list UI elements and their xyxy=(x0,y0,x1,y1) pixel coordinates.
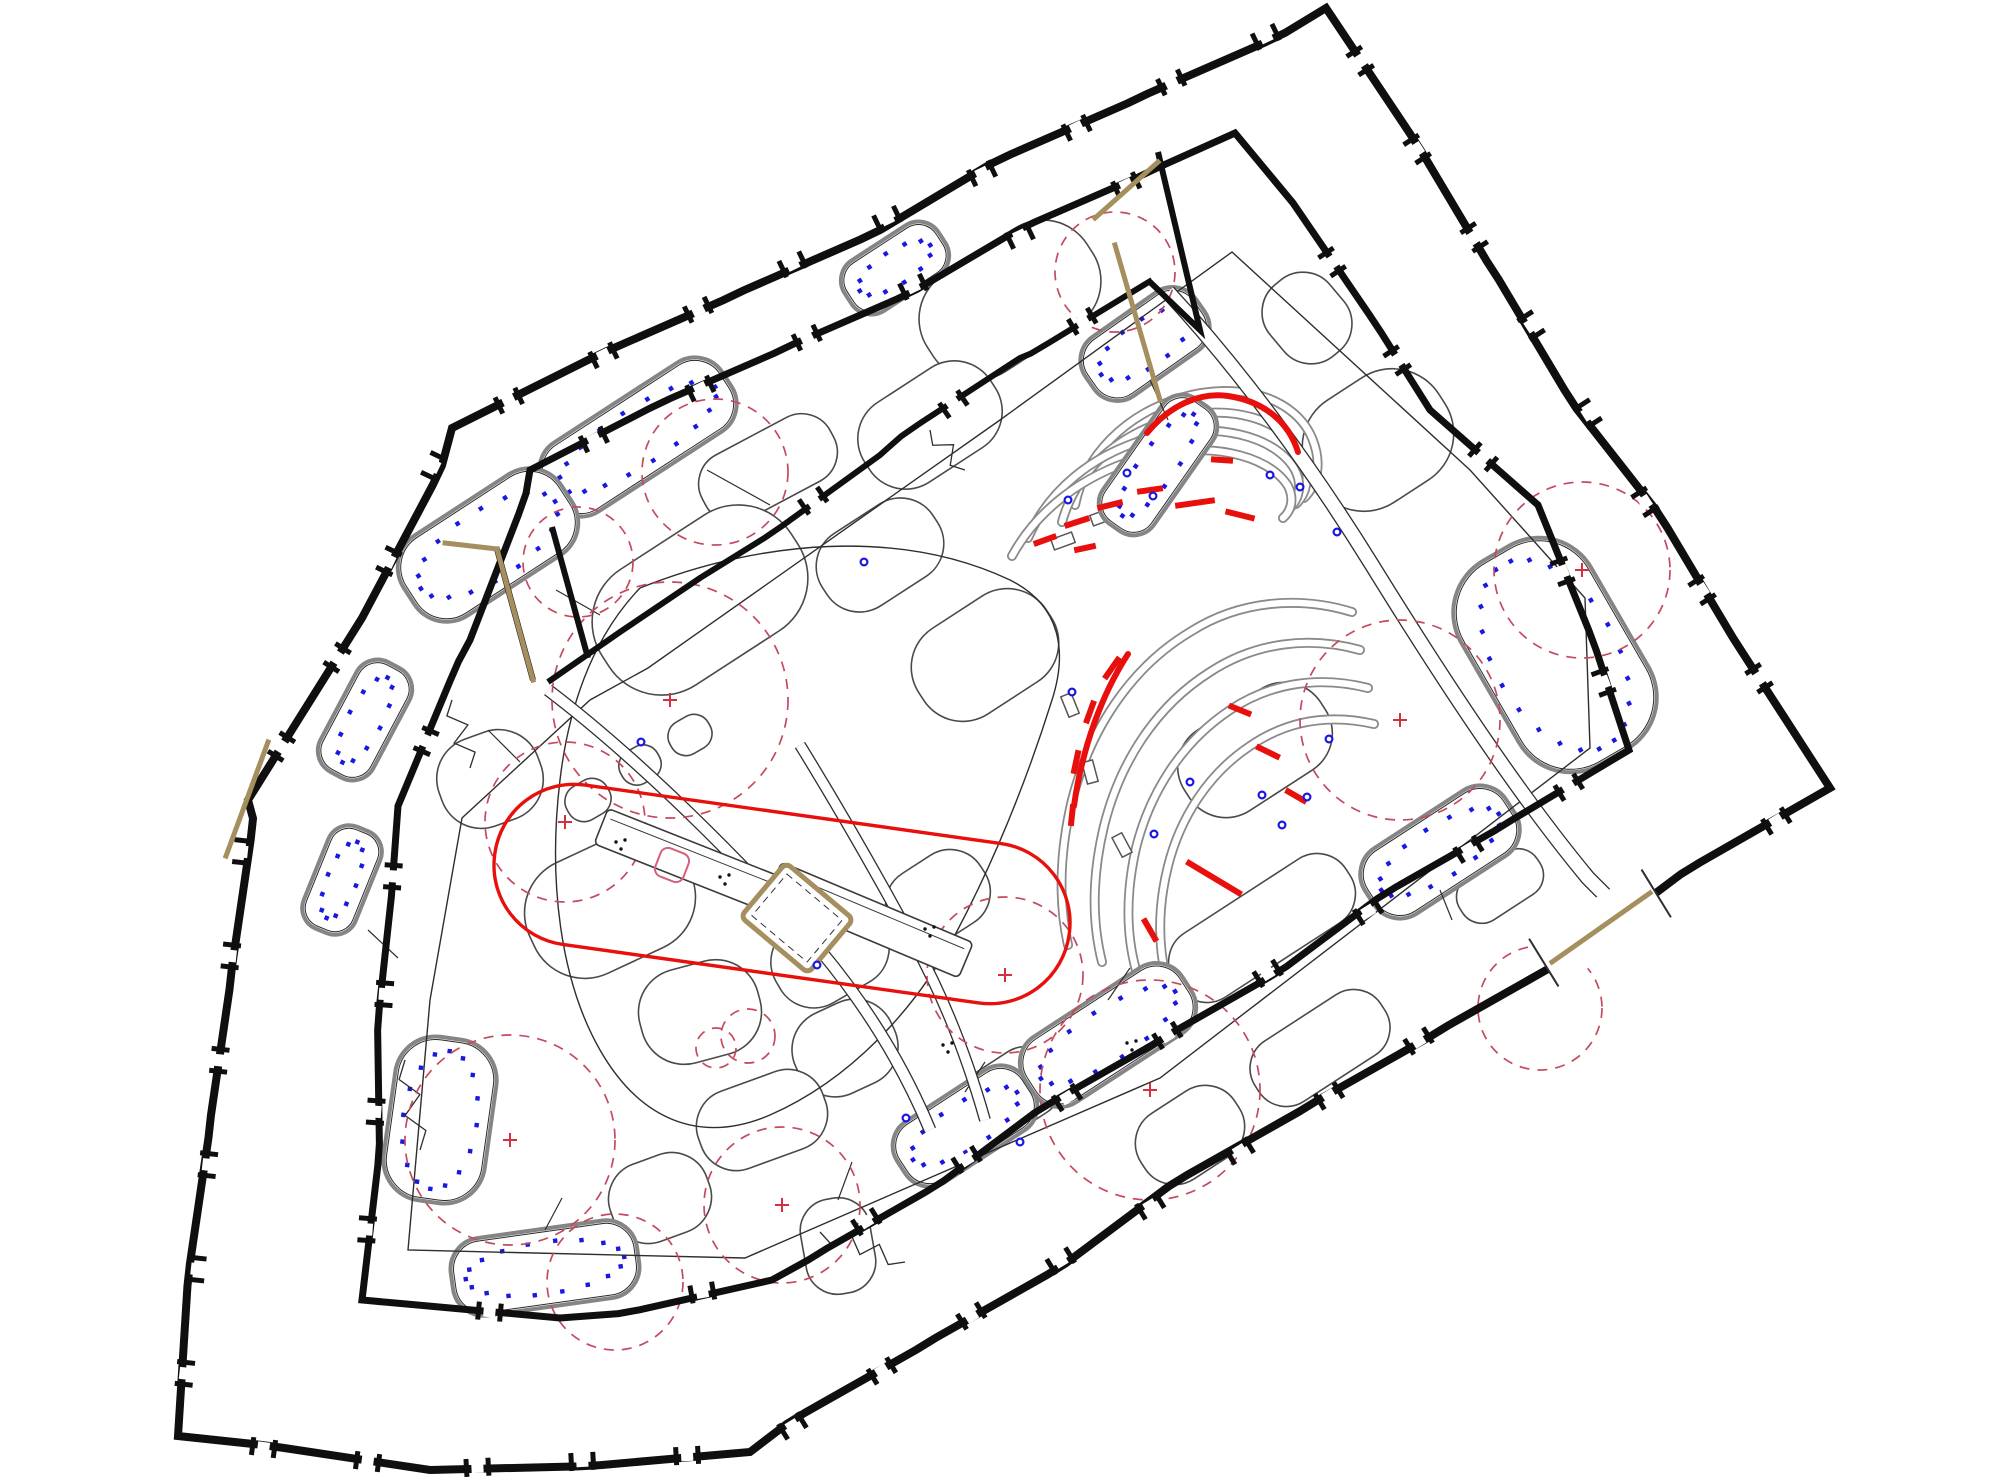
site-plan-drawing xyxy=(0,0,2000,1477)
site-plan-page xyxy=(0,0,2000,1477)
